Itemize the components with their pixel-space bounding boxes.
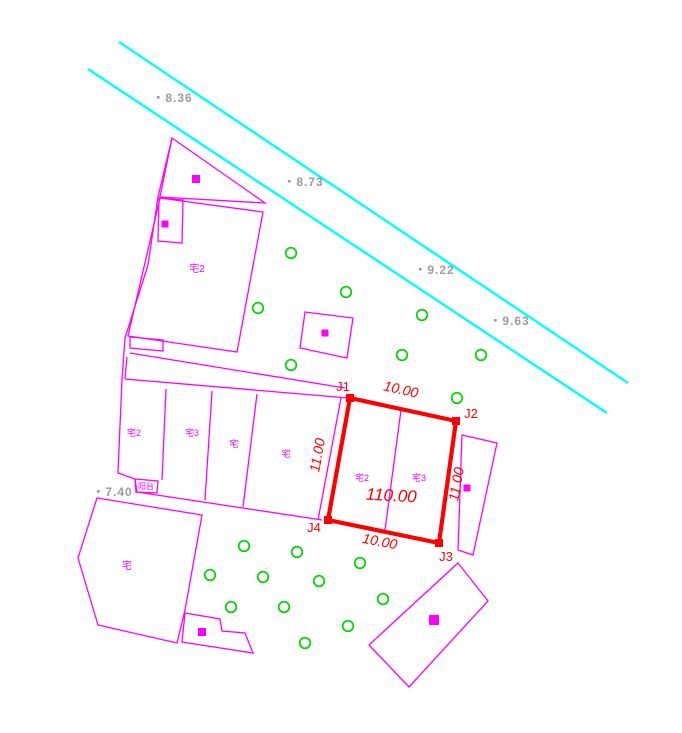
middle-block-bottom	[137, 492, 322, 520]
building-label-7: 宅	[122, 559, 132, 572]
building-label-3: 宅3	[185, 427, 199, 438]
building-label-6: 阳台	[138, 481, 154, 491]
triangle-building	[160, 138, 265, 203]
east-building	[458, 435, 497, 555]
building-marker-1	[192, 175, 200, 183]
building-marker-2	[162, 221, 169, 228]
dimension-label-1: 10.00	[382, 378, 420, 401]
tree-symbol-2	[341, 287, 352, 298]
upper-parcel-notch	[130, 337, 163, 351]
elevation-label-5: 7.40	[105, 485, 132, 499]
road-edge-lower	[88, 69, 607, 413]
tree-symbol-7	[476, 350, 487, 361]
middle-block-divider-3	[243, 394, 257, 507]
tree-symbol-5	[397, 350, 408, 361]
tree-symbol-3	[253, 303, 264, 314]
elevation-label-3: 9.22	[427, 263, 454, 277]
tree-symbol-13	[355, 558, 366, 569]
corner-label-J4: J4	[307, 520, 321, 535]
upper-parcel	[128, 198, 263, 352]
site-plan-svg: 宅2宅2宅3宅宅阳台宅J1J2J3J410.0010.0011.0011.001…	[0, 0, 682, 733]
building-label-1: 宅2	[189, 262, 205, 275]
building-marker-3	[322, 330, 329, 337]
dimension-label-3: 11.00	[306, 437, 328, 473]
middle-block-top	[125, 379, 348, 398]
middle-block-divider-1	[162, 389, 166, 480]
tree-symbol-6	[286, 360, 297, 371]
elevation-dot-5	[97, 490, 100, 493]
corner-label-J2: J2	[464, 406, 478, 421]
building-marker-5	[429, 615, 439, 625]
parcel-area-label: 110.00	[365, 485, 417, 507]
tree-symbol-11	[205, 570, 216, 581]
southeast-building	[369, 563, 488, 687]
lane-connector	[125, 357, 127, 379]
parcel-divider-line	[385, 410, 401, 530]
tree-symbol-19	[300, 638, 311, 649]
south-parcel	[78, 498, 202, 643]
building-marker-4	[464, 485, 471, 492]
tree-symbol-4	[417, 310, 428, 321]
corner-label-J3: J3	[439, 549, 453, 564]
corner-point-J1	[346, 394, 354, 402]
tree-symbol-1	[286, 248, 297, 259]
tree-symbol-16	[279, 602, 290, 613]
tree-symbol-17	[378, 594, 389, 605]
tree-symbol-10	[292, 547, 303, 558]
cad-viewport: 宅2宅2宅3宅宅阳台宅J1J2J3J410.0010.0011.0011.001…	[0, 0, 682, 733]
building-label-5: 宅	[281, 448, 290, 459]
middle-block-divider-2	[205, 391, 212, 500]
building-marker-6	[198, 628, 206, 636]
elevation-dot-3	[419, 268, 422, 271]
road-edge-upper	[119, 42, 628, 383]
selected-parcel-outline[interactable]	[328, 398, 456, 543]
elevation-label-2: 8.73	[296, 175, 323, 189]
tree-symbol-12	[258, 572, 269, 583]
elevation-label-1: 8.36	[165, 91, 192, 105]
corner-point-J4	[324, 516, 332, 524]
tree-symbol-18	[343, 621, 354, 632]
corner-point-J3	[435, 539, 443, 547]
tree-symbol-15	[226, 602, 237, 613]
corner-label-J1: J1	[336, 379, 350, 394]
small-south-building	[182, 613, 253, 653]
corner-point-J2	[452, 417, 460, 425]
parcel-inner-label-1: 宅2	[355, 472, 369, 483]
elevation-label-4: 9.63	[502, 314, 529, 328]
building-label-4: 宅	[229, 438, 238, 449]
elevation-dot-4	[494, 319, 497, 322]
tree-symbol-8	[452, 393, 463, 404]
elevation-dot-2	[288, 180, 291, 183]
elevation-dot-1	[157, 96, 160, 99]
tree-symbol-9	[239, 541, 250, 552]
building-label-2: 宅2	[127, 427, 141, 438]
parcel-inner-label-2: 宅3	[412, 472, 426, 483]
tree-symbol-14	[314, 576, 325, 587]
